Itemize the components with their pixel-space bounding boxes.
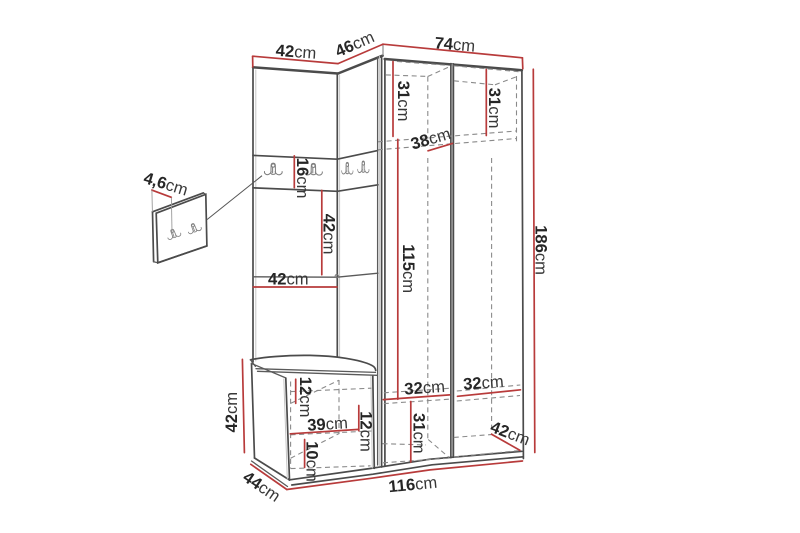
svg-text:186cm: 186cm — [532, 225, 551, 275]
svg-text:12cm: 12cm — [356, 411, 375, 452]
svg-text:32cm: 32cm — [404, 377, 446, 399]
svg-text:74cm: 74cm — [434, 33, 476, 55]
svg-text:115cm: 115cm — [399, 244, 418, 293]
svg-text:42cm: 42cm — [222, 392, 241, 433]
svg-text:12cm: 12cm — [296, 377, 315, 418]
svg-text:10cm: 10cm — [302, 441, 321, 482]
svg-text:42cm: 42cm — [268, 270, 309, 289]
svg-text:31cm: 31cm — [409, 413, 428, 454]
svg-text:32cm: 32cm — [462, 372, 504, 394]
svg-text:31cm: 31cm — [394, 81, 413, 122]
svg-text:16cm: 16cm — [293, 158, 312, 199]
svg-text:42cm: 42cm — [275, 41, 317, 63]
svg-text:39cm: 39cm — [307, 413, 349, 434]
svg-text:42cm: 42cm — [320, 214, 339, 255]
svg-text:31cm: 31cm — [485, 88, 504, 129]
